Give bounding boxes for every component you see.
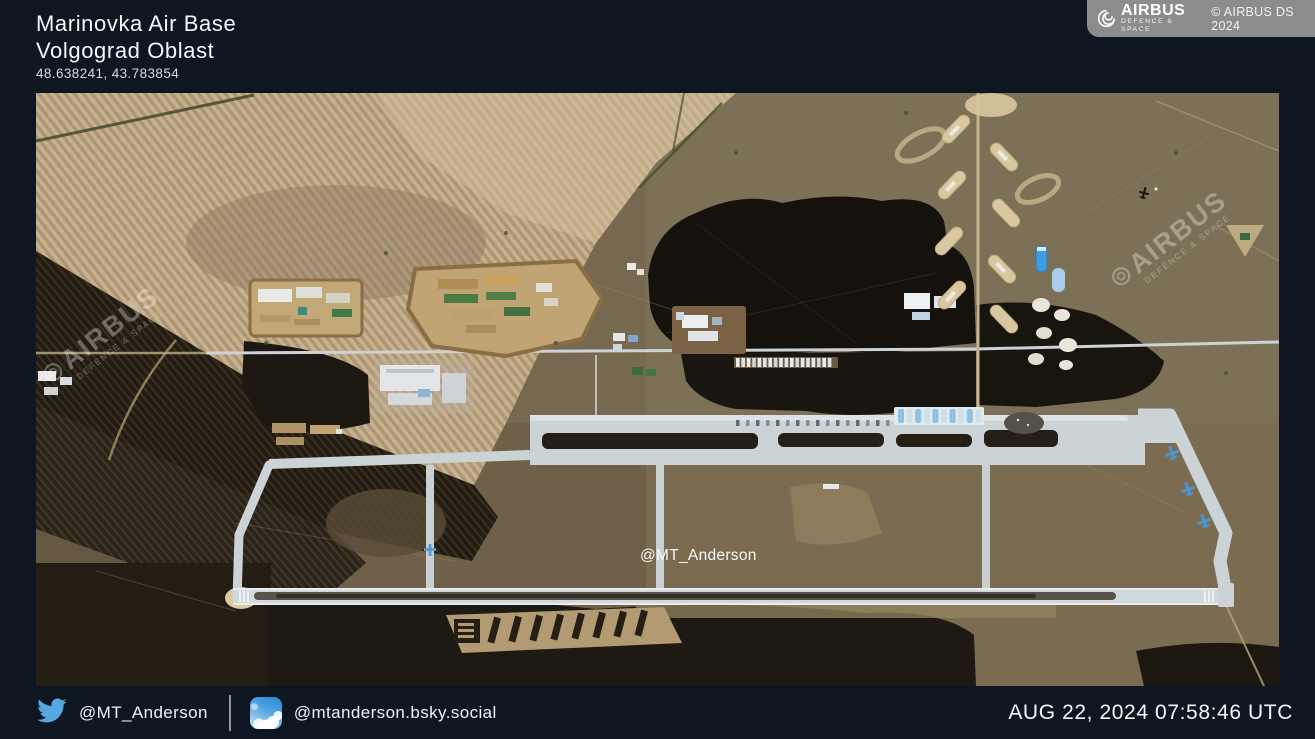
bluesky-icon [250, 697, 282, 729]
twitter-handle: @MT_Anderson [79, 703, 208, 723]
credit-box: AIRBUS DEFENCE & SPACE © AIRBUS DS 2024 [1087, 0, 1315, 37]
bluesky-handle: @mtanderson.bsky.social [294, 703, 497, 723]
footer: @MT_Anderson @mtanderson.bsky.social AUG… [0, 686, 1315, 739]
airbus-wordmark: AIRBUS DEFENCE & SPACE [1121, 3, 1198, 34]
coordinates-label: 48.638241, 43.783854 [36, 66, 236, 81]
page-title-line1: Marinovka Air Base [36, 10, 236, 37]
copyright-text: © AIRBUS DS 2024 [1211, 5, 1315, 33]
header: Marinovka Air Base Volgograd Oblast 48.6… [36, 10, 236, 81]
screenshot-root: Marinovka Air Base Volgograd Oblast 48.6… [0, 0, 1315, 739]
capture-timestamp: AUG 22, 2024 07:58:46 UTC [1008, 701, 1293, 725]
footer-divider [229, 695, 231, 731]
airbus-sub-text: DEFENCE & SPACE [1121, 18, 1198, 34]
airbus-brand-text: AIRBUS [1121, 3, 1198, 18]
satellite-image: AIRBUS DEFENCE & SPACE AIRBUS DEFENCE & … [36, 93, 1279, 686]
twitter-icon [36, 695, 67, 731]
airbus-swirl-icon [1097, 9, 1116, 28]
center-handle-watermark: @MT_Anderson [640, 547, 757, 564]
container-row [734, 357, 838, 368]
page-title-line2: Volgograd Oblast [36, 37, 236, 64]
